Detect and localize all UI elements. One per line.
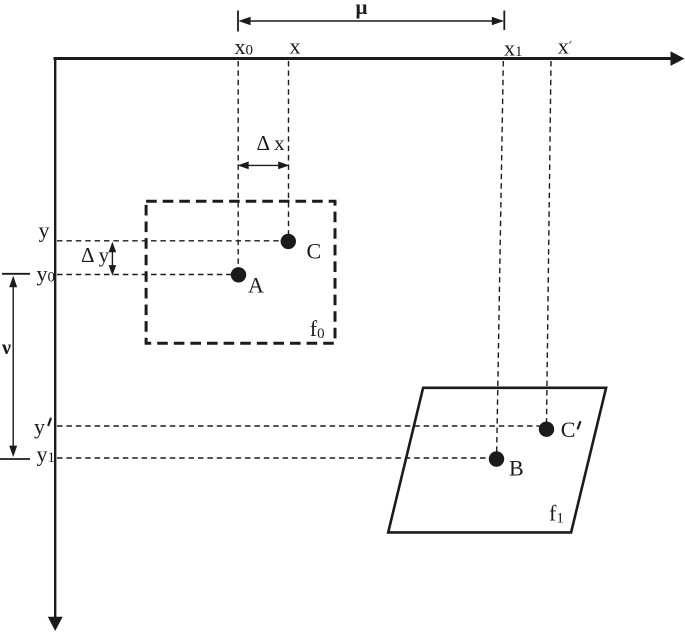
- svg-text:f1: f1: [549, 501, 564, 527]
- svg-text:C: C: [561, 417, 576, 442]
- svg-text:f0: f0: [310, 316, 325, 342]
- svg-text:y: y: [39, 218, 50, 243]
- svg-text:C: C: [307, 239, 322, 264]
- svg-text:A: A: [248, 273, 264, 298]
- svg-text:y0: y0: [37, 261, 56, 286]
- svg-text:y: y: [34, 414, 45, 439]
- svg-text:y1: y1: [37, 442, 56, 467]
- svg-text:x1: x1: [504, 36, 523, 61]
- svg-text:Δ x: Δ x: [257, 131, 286, 155]
- svg-text:x0: x0: [235, 34, 254, 59]
- svg-text:B: B: [509, 456, 524, 481]
- svg-text:Δ y: Δ y: [81, 243, 110, 267]
- svg-text:x: x: [290, 34, 301, 59]
- svg-text:ν: ν: [1, 337, 11, 359]
- svg-text:μ: μ: [356, 0, 368, 19]
- svg-text:x: x: [558, 33, 569, 58]
